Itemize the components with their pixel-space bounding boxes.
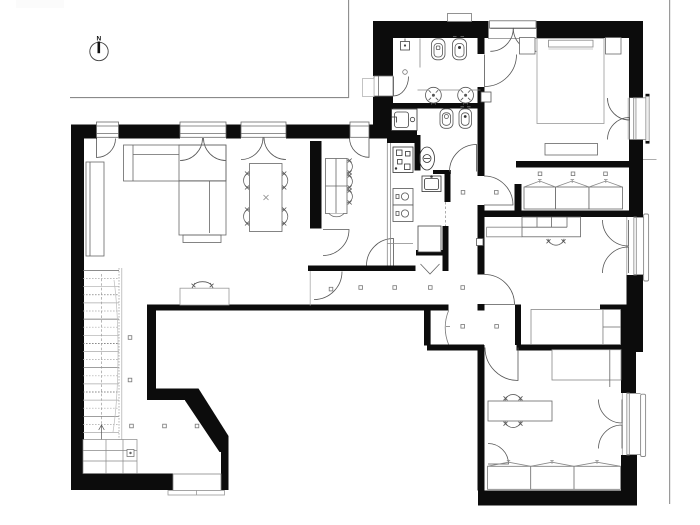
svg-text:N: N bbox=[96, 36, 101, 43]
